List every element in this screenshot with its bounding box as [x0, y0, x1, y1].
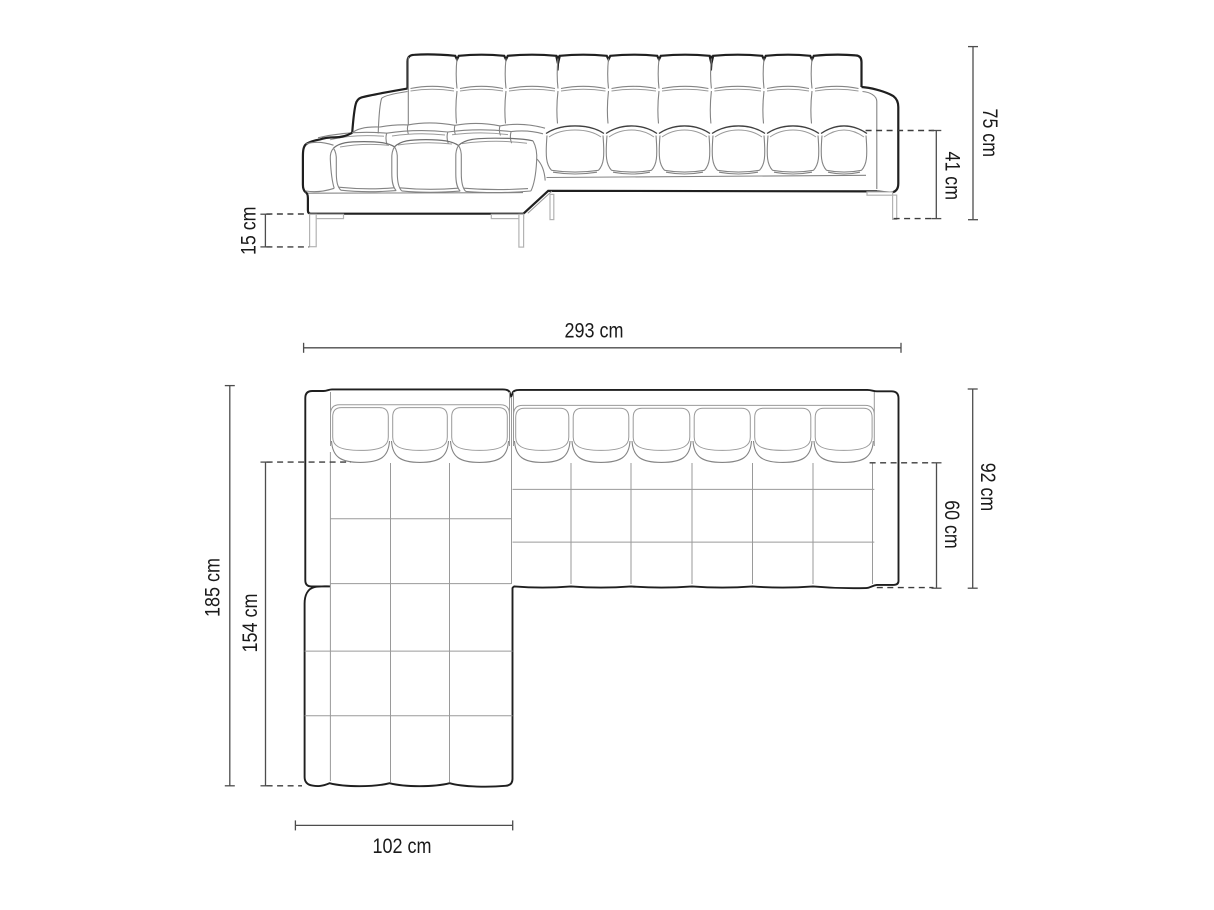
svg-text:41 cm: 41 cm: [941, 152, 964, 201]
svg-text:92 cm: 92 cm: [976, 463, 999, 512]
svg-text:102 cm: 102 cm: [373, 835, 432, 858]
svg-text:15 cm: 15 cm: [238, 207, 261, 256]
svg-text:185 cm: 185 cm: [201, 558, 224, 617]
svg-text:60 cm: 60 cm: [940, 500, 963, 549]
svg-text:154 cm: 154 cm: [239, 594, 262, 653]
svg-text:293 cm: 293 cm: [565, 320, 624, 343]
svg-text:75 cm: 75 cm: [978, 109, 1001, 158]
